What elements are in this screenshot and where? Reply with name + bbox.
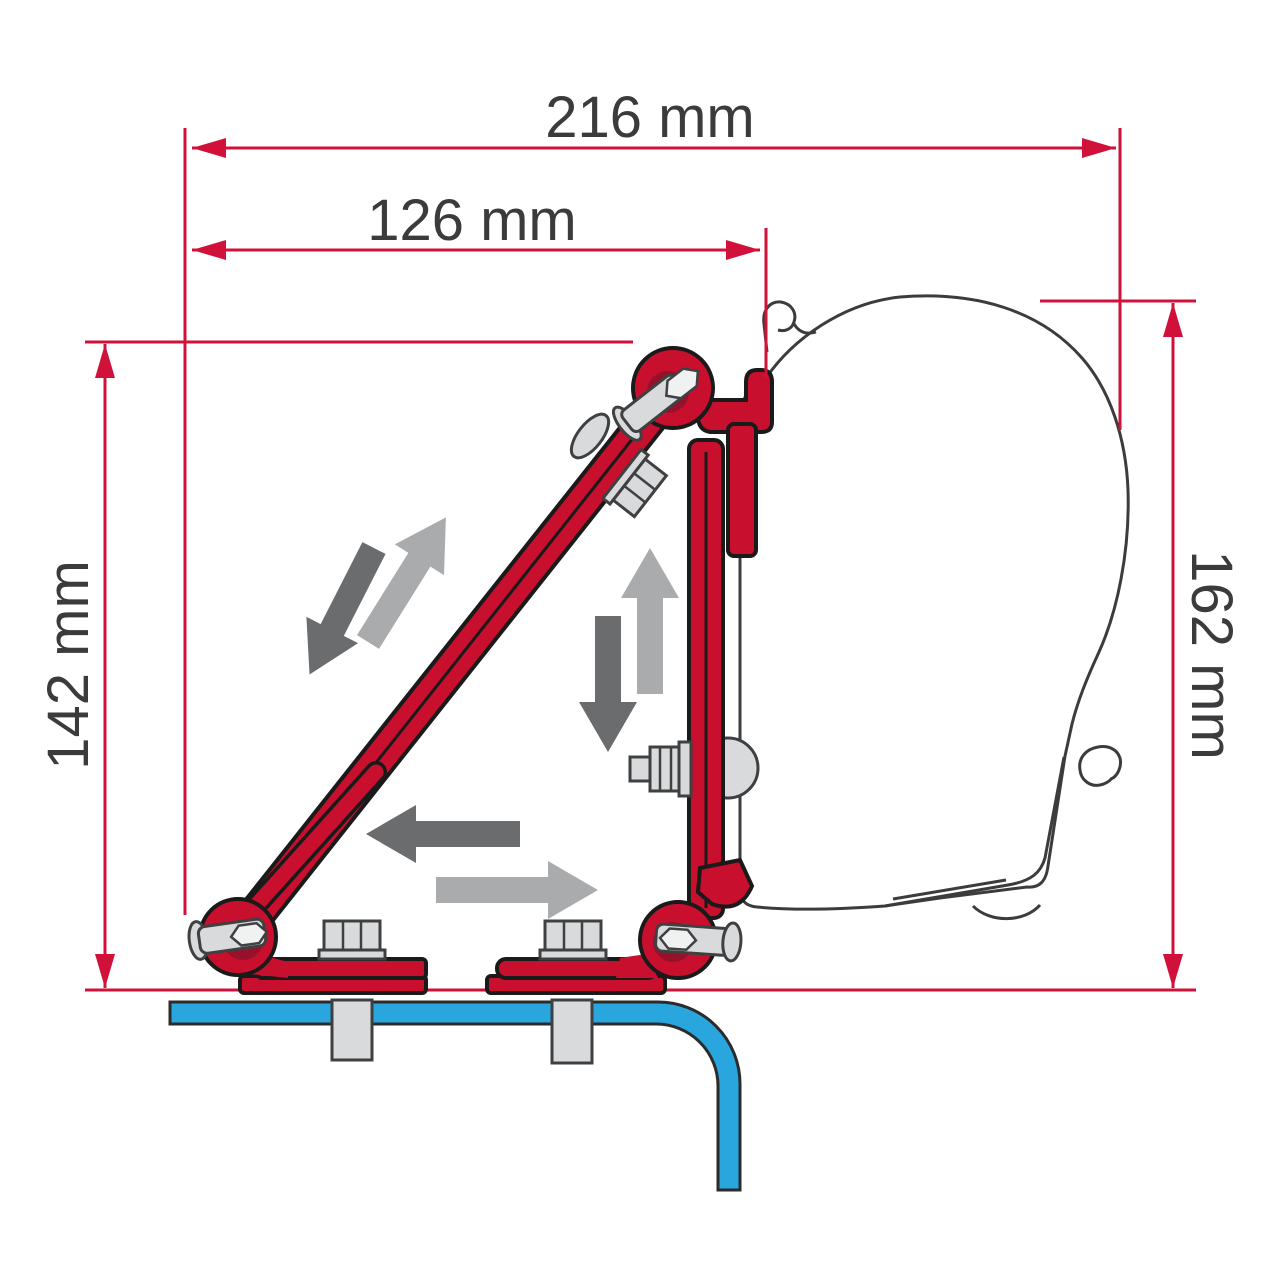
dimension-216-label: 216 mm <box>545 85 755 150</box>
awning-case-outline <box>740 296 1128 919</box>
awning-side-channel <box>1080 746 1121 785</box>
arrow-down-icon <box>579 616 637 752</box>
roof-bolt-shaft-right <box>552 1000 592 1063</box>
plate-bolt-left <box>319 921 385 959</box>
bottom-left-hinge-ring <box>187 899 276 975</box>
arrow-left-icon <box>366 805 520 863</box>
dimension-126-label: 126 mm <box>367 188 577 253</box>
arrow-up-icon <box>621 548 679 694</box>
vertical-rail-rear <box>728 424 756 556</box>
movement-arrows <box>284 502 679 919</box>
plate-bolt-right <box>540 921 606 959</box>
bottom-right-hinge-ring <box>640 902 742 978</box>
dimension-142: 142 mm <box>36 344 115 988</box>
awning-gutter-hook <box>764 302 795 352</box>
roof-bolt-shaft-left <box>332 1000 372 1060</box>
awning-hook-nub <box>793 322 816 333</box>
arrow-right-icon <box>436 861 598 919</box>
dimension-216: 216 mm <box>192 85 1116 158</box>
awning-bracket-diagram: 216 mm 126 mm 142 mm 162 mm <box>0 0 1280 1280</box>
slide-strip <box>252 772 376 910</box>
awning-roller-bump <box>973 905 1040 919</box>
dimension-126: 126 mm <box>192 188 760 260</box>
roof-rail <box>170 1002 740 1190</box>
rail-ring-connector <box>698 860 752 907</box>
dimension-162-label: 162 mm <box>1179 550 1244 760</box>
dimension-162: 162 mm <box>1163 303 1244 988</box>
rail-bolt <box>630 742 691 796</box>
awning-case-body <box>740 296 1128 909</box>
dimension-142-label: 142 mm <box>36 560 101 770</box>
installation-diagram-page: 216 mm 126 mm 142 mm 162 mm <box>0 0 1280 1280</box>
